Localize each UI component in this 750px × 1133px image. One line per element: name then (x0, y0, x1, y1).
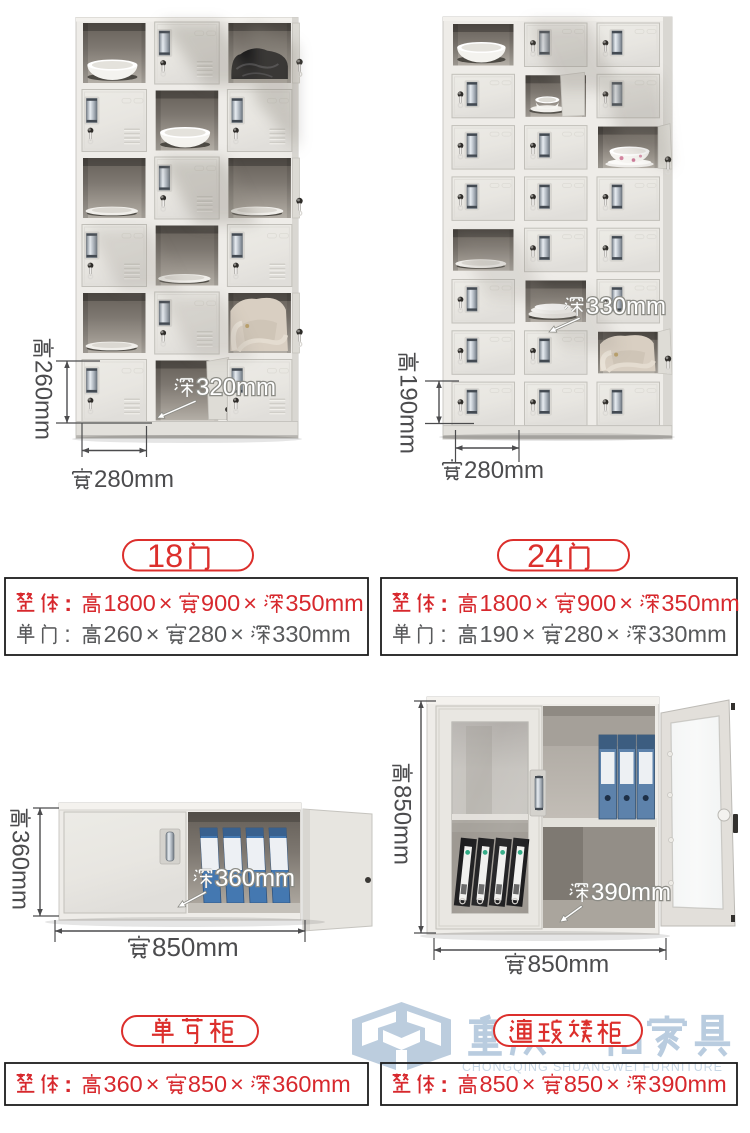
svg-text:280: 280 (188, 621, 227, 647)
svg-text:900: 900 (577, 590, 616, 616)
svg-text:350mm: 350mm (661, 590, 739, 616)
svg-text:360mm: 360mm (215, 865, 295, 892)
svg-text:1800: 1800 (480, 590, 532, 616)
svg-text:330mm: 330mm (586, 293, 666, 320)
svg-text:850mm: 850mm (528, 951, 610, 978)
svg-text:350mm: 350mm (285, 590, 363, 616)
svg-text:×: × (159, 590, 173, 616)
svg-text:850: 850 (480, 1071, 519, 1097)
svg-text::: : (64, 621, 71, 647)
svg-text:1800: 1800 (104, 590, 156, 616)
svg-text:24: 24 (527, 538, 563, 574)
svg-text::: : (440, 621, 447, 647)
svg-text:280mm: 280mm (464, 457, 544, 484)
svg-text:280: 280 (564, 621, 603, 647)
svg-text:260mm: 260mm (29, 360, 56, 440)
svg-text:×: × (146, 1071, 160, 1097)
svg-text:×: × (522, 1071, 536, 1097)
svg-text::: : (64, 1071, 72, 1097)
svg-text:×: × (619, 590, 633, 616)
svg-text:×: × (146, 621, 160, 647)
svg-text:360: 360 (104, 1071, 143, 1097)
svg-text:×: × (606, 1071, 620, 1097)
svg-text:850mm: 850mm (388, 785, 415, 865)
svg-text::: : (440, 590, 448, 616)
svg-text:900: 900 (201, 590, 240, 616)
svg-text:850: 850 (564, 1071, 603, 1097)
svg-text:×: × (606, 621, 620, 647)
svg-text:360mm: 360mm (6, 830, 33, 910)
svg-text:330mm: 330mm (648, 621, 726, 647)
svg-text::: : (64, 590, 72, 616)
svg-text:280mm: 280mm (94, 466, 174, 493)
svg-text:×: × (522, 621, 536, 647)
svg-text:330mm: 330mm (272, 621, 350, 647)
svg-text:190mm: 190mm (394, 374, 421, 454)
svg-text:390mm: 390mm (648, 1071, 726, 1097)
svg-text:×: × (243, 590, 257, 616)
svg-text:850mm: 850mm (152, 932, 239, 962)
svg-text::: : (440, 1071, 448, 1097)
svg-text:850: 850 (188, 1071, 227, 1097)
svg-text:360mm: 360mm (272, 1071, 350, 1097)
svg-text:×: × (535, 590, 549, 616)
svg-text:×: × (230, 1071, 244, 1097)
svg-text:260: 260 (104, 621, 143, 647)
svg-text:390mm: 390mm (591, 879, 671, 906)
svg-text:×: × (230, 621, 244, 647)
svg-text:190: 190 (480, 621, 519, 647)
svg-text:18: 18 (147, 538, 183, 574)
svg-text:320mm: 320mm (196, 374, 276, 401)
